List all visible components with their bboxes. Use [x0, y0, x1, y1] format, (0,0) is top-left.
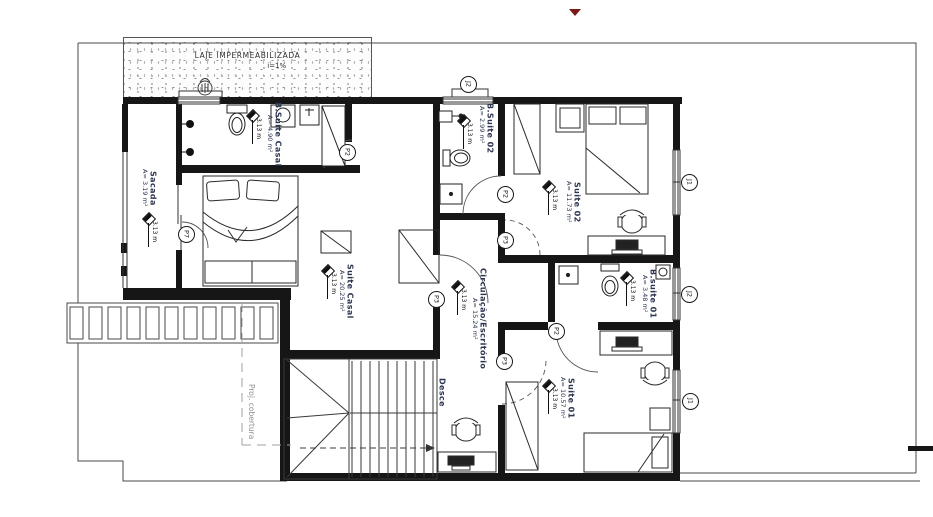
level-marker: 3.13 m — [622, 273, 642, 309]
single-bed-01 — [506, 382, 672, 472]
door-marker: P3 — [497, 232, 514, 249]
roof-projection-label: Proj. cobertura — [247, 370, 256, 454]
walls — [121, 97, 682, 481]
stairs-label: Desce — [437, 372, 447, 412]
office-chair-02 — [618, 210, 646, 233]
door-marker: P2 — [548, 323, 565, 340]
door-marker: P7 — [178, 226, 195, 243]
window-marker: J1 — [681, 174, 698, 191]
level-marker: 3.13 m — [459, 116, 479, 152]
door-marker: P2 — [497, 186, 514, 203]
red-triangle-icon — [569, 9, 581, 16]
window-marker: J2 — [460, 76, 477, 93]
level-marker: 3.13 m — [544, 182, 564, 218]
door-marker: P3 — [496, 353, 513, 370]
room-label-suite-02: Suite 02 A= 11.73 m² — [564, 178, 581, 226]
window-marker: J2 — [681, 286, 698, 303]
room-label-circulacao: Circulação/Escritório A= 15.24 m² — [470, 253, 487, 385]
room-label-sacada: Sacada A= 3.19 m² — [140, 157, 157, 219]
wall-stub — [908, 446, 933, 451]
level-marker: 3.13 m — [248, 111, 268, 147]
window-marker: J1 — [682, 393, 699, 410]
level-marker: 3.13 m — [453, 282, 473, 318]
drain-symbol-icon — [198, 79, 212, 96]
office-chair-escritorio — [452, 418, 480, 441]
bathroom-fixtures-casal — [227, 105, 345, 166]
door-marker: P3 — [428, 291, 445, 308]
level-marker: 3.13 m — [144, 214, 164, 250]
level-marker: 3.13 m — [544, 381, 564, 417]
desk-escritorio — [438, 452, 496, 472]
door-arcs — [182, 140, 598, 404]
desk-01 — [600, 331, 672, 355]
floor-plan: LAJE IMPERMEABILIZADA i=1% — [0, 0, 933, 517]
door-marker: P2 — [339, 144, 356, 161]
desk-02 — [588, 236, 665, 255]
stairs — [284, 359, 437, 479]
level-marker: 3.13 m — [323, 266, 343, 302]
room-label-bsuite-02: B.Suite 02 A= 2.99 m² — [477, 103, 494, 147]
double-bed — [203, 176, 298, 286]
stairs-arrow-icon — [426, 444, 435, 452]
room-label-bsuite-01: B.suite 01 A= 3.48 m² — [640, 267, 657, 321]
wall-fixture-dots — [182, 121, 194, 156]
pergola-beams — [67, 303, 278, 343]
office-chair-01 — [641, 362, 669, 385]
